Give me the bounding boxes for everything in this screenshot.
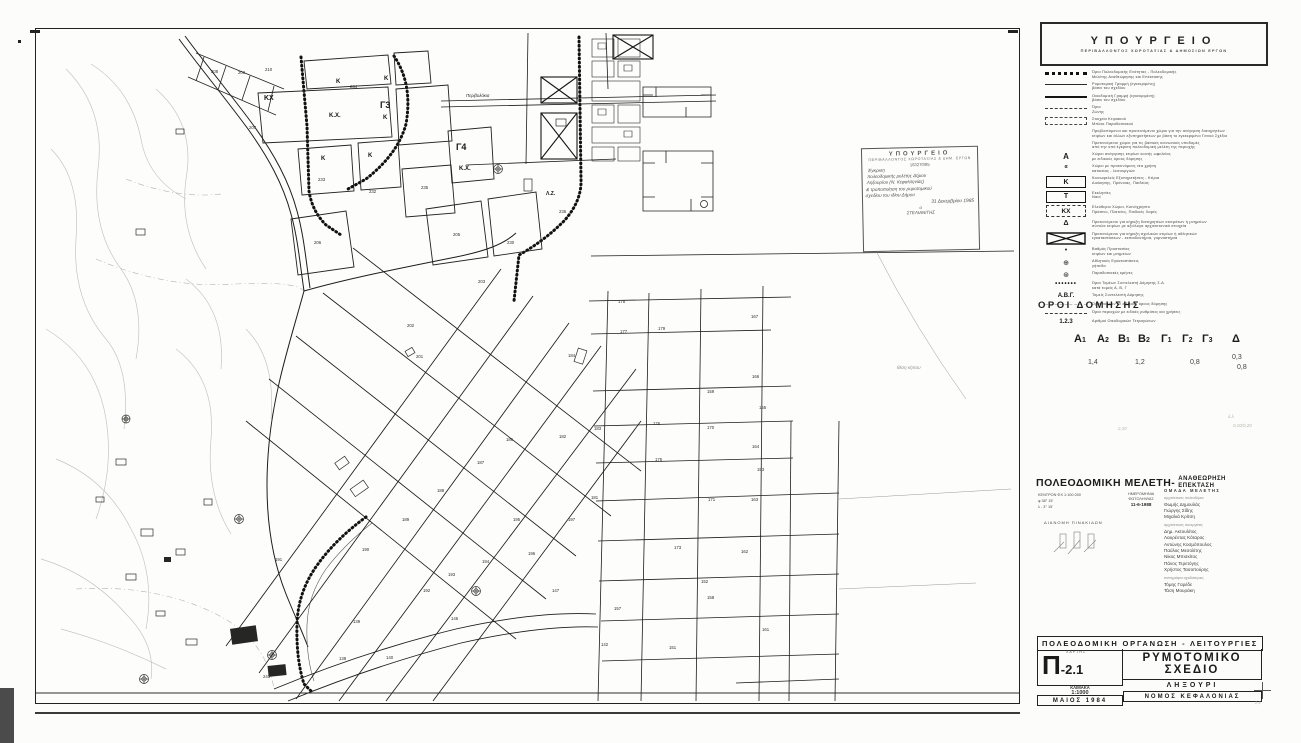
zone-label: Λ.Ζ. [546, 191, 556, 197]
zone-label: Κ [336, 79, 341, 85]
terms-column-header: Γ1 [1161, 333, 1172, 345]
team-title: ΟΜΑΔΑ ΜΕΛΕΤΗΣ [1164, 488, 1294, 493]
terms-column-header: Β1 [1118, 333, 1130, 345]
zone-label: Κ [368, 153, 373, 159]
block-number: 138 [339, 656, 347, 661]
legend-item: ⊕Αθλητικές Εγκαταστάσειςγήπεδα [1040, 259, 1296, 268]
plates-diagram [1050, 528, 1110, 558]
block-number: 233 [318, 177, 326, 182]
terms-value: 0,8 [1237, 364, 1247, 371]
terms-value: 1,2 [1135, 359, 1145, 366]
legend-symbol-none-icon [1040, 141, 1092, 147]
block-number: 208 [211, 69, 219, 74]
legend-symbol-none-icon [1040, 129, 1092, 135]
map-title-line2: ΣΧΕΔΙΟ [1165, 664, 1220, 676]
study-title-left: ΠΟΛΕΟΔΟΜΙΚΗ ΜΕΛΕΤΗ- [1036, 477, 1175, 489]
legend-label: Οικοδομική Γραμμή (εγκεκριμένη)βάσει του… [1092, 94, 1155, 103]
zone-label: 234 [350, 84, 358, 89]
legend-item: Α.Β.Γ.Τομείς Συντελεστή Δόμησης [1040, 293, 1296, 299]
legend-label: Στοιχεία ΚτιριακούΜπλοκ Παραδοσιακού [1092, 117, 1133, 126]
team-member-name: Χρήστος Τασοπούρης [1164, 567, 1294, 573]
block-number: 151 [669, 645, 677, 650]
block-number: 196 [528, 551, 536, 556]
main-road [179, 36, 516, 647]
terms-column-header: Α2 [1097, 333, 1109, 345]
block-number: 182 [559, 434, 567, 439]
block-number: 170 [707, 425, 715, 430]
legend-symbol-circast-icon: ⊛ [1040, 271, 1092, 279]
legend-symbol-xbox-icon [1040, 232, 1092, 245]
terms-value: 1,4 [1088, 359, 1098, 366]
block-number: 155 [759, 405, 767, 410]
legend-label: Ελεύθεροι Χώροι, ΚοινόχρηστοΠράσινο, Πλα… [1092, 205, 1157, 214]
street-grid-central [226, 248, 641, 701]
legend-symbol-A-icon: Α [1040, 152, 1092, 161]
photo-date-block: ΗΜΕΡΟΜΗΝΙΑ ΦΩΤΟΛΗΨΙΑΣ 11-6-1988 [1128, 492, 1154, 507]
block-number: 173 [674, 545, 682, 550]
block-number: 181 [591, 495, 599, 500]
team-groups: αρχιτέκτονες πολεοδόμοιΘωμής ΔημουλάςΓιώ… [1164, 496, 1294, 594]
block-number: 235 [421, 185, 429, 190]
legend-item: Προτεινόμενοι για κήρυξη σχολικών κτιρίω… [1040, 232, 1296, 245]
block-number: 163 [751, 497, 759, 502]
legend-symbol-line-icon [1040, 82, 1092, 88]
block-number: 197 [568, 517, 576, 522]
scattered-buildings [96, 119, 587, 645]
street-plan-drawing: 2082092102072332322352362062052302032022… [36, 29, 1019, 703]
legend-label: Προτεινόμενοι χώροι για τις βασικές κοιν… [1092, 141, 1200, 150]
legend-symbol-dashbox-icon [1040, 117, 1092, 125]
block-number: 152 [701, 579, 709, 584]
pencil-note: 2,20 [1118, 426, 1127, 431]
legend-item: Προβλεπόμενοι και προτεινόμενοι χώροι γι… [1040, 129, 1296, 138]
legend-item: Προτεινόμενοι χώροι για τις βασικές κοιν… [1040, 141, 1296, 150]
pencil-note: 0,20/0,20 [1233, 423, 1252, 428]
block-number: 189 [402, 517, 410, 522]
block-number: 142 [601, 642, 609, 647]
legend-item: ΚΚοινωφελείς Εξυπηρετήσεις - ΚτίριαΔιοίκ… [1040, 176, 1296, 188]
terms-column-header: Δ [1232, 333, 1240, 345]
stamp-hand-line: σχεδίου του ιδίου Δήμου [865, 191, 972, 199]
block-number: 192 [423, 588, 431, 593]
block-number: 175 [655, 457, 663, 462]
block-number: 140 [386, 655, 394, 660]
block-number: 153 [757, 467, 765, 472]
map-legend: Όριο Πολεοδομικής Ενότητας - Πολεοδομική… [1040, 70, 1296, 328]
legend-symbol-tbox-icon: Τ [1040, 191, 1092, 203]
legend-label: ΕκκλησίεςΝαοί [1092, 191, 1111, 200]
team-member-name: Τάση Μουράκη [1164, 588, 1294, 594]
zone-label: ΚΧ [264, 95, 274, 102]
block-number: 157 [614, 606, 622, 611]
scan-corner-artifact [0, 688, 14, 743]
block-number: 209 [238, 70, 246, 75]
team-member-name: Μιχαλιά Κρίτση [1164, 514, 1294, 520]
block-number: 195 [513, 517, 521, 522]
dark-buildings [164, 557, 287, 677]
sheet-bottom-rule [35, 712, 1020, 714]
legend-symbol-abc-icon: Α.Β.Γ. [1040, 293, 1092, 299]
block-number: 188 [437, 488, 445, 493]
study-meta: ΚΕΝΤΡΟΝ ΦΧ 1:100.000φ 38° 15'λ - 3° 15' [1038, 492, 1081, 510]
block-number: 190 [362, 547, 370, 552]
map-frame: 2082092102072332322352362062052302032022… [35, 28, 1020, 704]
date-cell: ΜΑΙΟΣ 1984 [1037, 695, 1123, 706]
legend-symbol-thick-icon [1040, 94, 1092, 100]
block-number: 179 [658, 326, 666, 331]
zone-label: Γ3 [380, 100, 390, 110]
map-code-number: -2.1 [1061, 662, 1083, 677]
block-number: 184 [568, 353, 576, 358]
terms-column-header: Β2 [1138, 333, 1150, 345]
block-number: 164 [752, 444, 760, 449]
legend-label: Όρια Τομέων Συντελεστή Δόμησης Σ.Δ.κατά … [1092, 281, 1165, 290]
legend-label: Όριο Πολεοδομικής Ενότητας - Πολεοδομική… [1092, 70, 1176, 79]
titleblock-code-cell: ΧΑΡΤΗΣ Π-2.1 [1037, 649, 1123, 686]
zone-label: Γ4 [456, 142, 466, 152]
legend-symbol-dotrow-icon: ••••••• [1040, 281, 1092, 287]
contour-lines [41, 64, 272, 679]
study-title-right-1: ΑΝΑΘΕΩΡΗΣΗ [1178, 476, 1226, 482]
terms-column-header: Α1 [1074, 333, 1086, 345]
block-number: 158 [707, 595, 715, 600]
block-number: 207 [249, 125, 257, 130]
legend-item: ΚΧΕλεύθεροι Χώροι, ΚοινόχρηστοΠράσινο, Π… [1040, 205, 1296, 217]
pencil-note: λ.λ. [1228, 414, 1235, 419]
legend-symbol-bdots-icon [1040, 70, 1092, 76]
scale-cell: ΚΛΙΜΑΚΑ 1:1000 [1037, 686, 1123, 695]
legend-symbol-a-icon: α [1040, 164, 1092, 170]
legend-symbol-kbox-icon: Κ [1040, 176, 1092, 188]
street-grid-right [589, 251, 1014, 701]
block-number: 206 [314, 240, 322, 245]
street-name-label: Περιβολάκια [466, 93, 490, 98]
legend-item: ΑΧώροι ανέγερσης κτιρίων κοινής ωφελείας… [1040, 152, 1296, 161]
block-number: 183 [594, 426, 602, 431]
map-title-line1: ΡΥΜΟΤΟΜΙΚΟ [1142, 652, 1241, 664]
legend-item: Όριο Πολεοδομικής Ενότητας - Πολεοδομική… [1040, 70, 1296, 79]
block-number: 210 [265, 67, 273, 72]
terms-value: 0,3 [1232, 354, 1242, 361]
block-number: 186 [506, 437, 514, 442]
block-number: 162 [741, 549, 749, 554]
map-title-cell: ΡΥΜΟΤΟΜΙΚΟ ΣΧΕΔΙΟ [1123, 649, 1262, 680]
block-number: 147 [552, 588, 560, 593]
block-number: 243 [263, 674, 271, 679]
stamp-signature: ΣΤΕΛΙΑΝΙΤΗΣ [867, 209, 974, 216]
legend-item: αΧώροι με προτεινόμενη νέα χρήσηκατοικία… [1040, 164, 1296, 173]
legend-label: Προτεινόμενοι για κήρυξη σχολικών κτιρίω… [1092, 232, 1197, 241]
legend-label: Χώροι με προτεινόμενη νέα χρήσηκατοικίας… [1092, 164, 1156, 173]
legend-symbol-dash-icon [1040, 105, 1092, 111]
block-number: 187 [477, 460, 485, 465]
building-terms-table: Α1Α2Β1Β2Γ1Γ2Γ3Δ1,41,20,80,30,82,200,20/0… [1038, 311, 1298, 441]
map-code: Π-2.1 [1042, 652, 1083, 679]
legend-label: Προβλεπόμενοι και προτεινόμενοι χώροι γι… [1092, 129, 1227, 138]
ministry-subtitle: ΠΕΡΙΒΑΛΛΟΝΤΟΣ ΧΩΡΟΤΑΞΙΑΣ & ΔΗΜΟΣΙΩΝ ΕΡΓΩ… [1042, 49, 1266, 53]
study-meta-line: λ - 3° 15' [1038, 504, 1081, 510]
corner-tick [18, 40, 21, 43]
block-number: 159 [707, 389, 715, 394]
block-number: 166 [752, 374, 760, 379]
legend-item: ΤΕκκλησίεςΝαοί [1040, 191, 1296, 203]
block-number: 177 [620, 329, 628, 334]
block-number: 194 [482, 559, 490, 564]
study-team: ΟΜΑΔΑ ΜΕΛΕΤΗΣ αρχιτέκτονες πολεοδόμοιΘωμ… [1164, 488, 1294, 594]
legend-label: Χώροι ανέγερσης κτιρίων κοινής ωφελείαςμ… [1092, 152, 1171, 161]
zone-label: Κ.Χ. [329, 113, 341, 119]
prefecture-cell: ΝΟΜΟΣ ΚΕΦΑΛΟΝΙΑΣ [1123, 691, 1262, 702]
block-number: 202 [407, 323, 415, 328]
block-number: 232 [369, 189, 377, 194]
zone-label: Κ.Χ. [459, 166, 471, 172]
legend-label: Τομείς Συντελεστή Δόμησης [1092, 293, 1144, 298]
legend-label: Ρυμοτομική Γραμμή (εγκεκριμένη)βάσει του… [1092, 82, 1155, 91]
ministry-title: ΥΠΟΥΡΓΕΙΟ [1042, 35, 1266, 47]
block-number: 203 [478, 279, 486, 284]
study-block: ΠΟΛΕΟΔΟΜΙΚΗ ΜΕΛΕΤΗ- ΑΝΑΘΕΩΡΗΣΗ ΕΠΕΚΤΑΣΗ … [1036, 476, 1298, 489]
top-blocks [188, 53, 284, 115]
legend-item: ΔΠροτεινόμενοι για κήρυξη διατηρητέων κτ… [1040, 220, 1296, 229]
corner-tick [30, 30, 40, 33]
tree-symbols [122, 165, 503, 684]
block-number: 171 [708, 497, 716, 502]
school-buildings [643, 87, 713, 211]
map-code-letter: Π [1042, 650, 1061, 680]
block-number: 176 [653, 421, 661, 426]
approval-stamp: ΥΠΟΥΡΓΕΙΟ ΠΕΡΙΒΑΛΛΟΝΤΟΣ ΧΩΡΟΤΑΞΙΑΣ & ΔΗΜ… [861, 146, 980, 252]
legend-symbol-kxbox-icon: ΚΧ [1040, 205, 1092, 217]
legend-label: Παραδοσιακές κρήνες [1092, 271, 1133, 276]
faint-right-lines [839, 251, 1011, 589]
registration-cross [1254, 682, 1271, 699]
legend-label: Αθλητικές Εγκαταστάσειςγήπεδα [1092, 259, 1139, 268]
legend-item: Στοιχεία ΚτιριακούΜπλοκ Παραδοσιακού [1040, 117, 1296, 126]
legend-item: ⊛Παραδοσιακές κρήνες [1040, 271, 1296, 279]
plates-title: ΔΙΑΝΟΜΗ ΠΙΝΑΚΙΔΩΝ [1044, 520, 1103, 525]
corner-tick [1008, 30, 1018, 33]
zone-label: Κ [384, 76, 389, 82]
legend-item: •••••••Όρια Τομέων Συντελεστή Δόμησης Σ.… [1040, 281, 1296, 290]
legend-label: ΌριοΖώνης [1092, 105, 1104, 114]
block-number: 178 [618, 299, 626, 304]
team-group-header: αρχιτέκτονες συνεργάτες [1164, 523, 1294, 527]
scanned-map-sheet: { "map": { "street_label": "Περιβολάκια"… [0, 0, 1301, 743]
block-number: 201 [416, 354, 424, 359]
zone-label: Κ [383, 115, 388, 121]
block-number: 161 [762, 627, 770, 632]
ministry-title-box: ΥΠΟΥΡΓΕΙΟ ΠΕΡΙΒΑΛΛΟΝΤΟΣ ΧΩΡΟΤΑΞΙΑΣ & ΔΗΜ… [1040, 22, 1268, 66]
terms-value: 0,8 [1190, 359, 1200, 366]
legend-item: ΌριοΖώνης [1040, 105, 1296, 114]
block-number: 236 [559, 209, 567, 214]
kx-parcels [258, 51, 542, 275]
legend-symbol-tri-icon: Δ [1040, 220, 1092, 227]
zone-label: Κ [321, 156, 326, 162]
building-terms-title: ΟΡΟΙ ΔΟΜΗΣΗΣ [1038, 300, 1298, 311]
legend-label: Βαθμός Προστασίαςκτιρίων και μνημείων [1092, 247, 1131, 256]
team-group-header: αρχιτέκτονες πολεοδόμοι [1164, 496, 1294, 500]
legend-item: Ρυμοτομική Γραμμή (εγκεκριμένη)βάσει του… [1040, 82, 1296, 91]
block-number: 167 [751, 314, 759, 319]
terms-column-header: Γ3 [1202, 333, 1213, 345]
block-number: 191 [275, 557, 283, 562]
stamp-note: θέση κήπου [897, 365, 921, 370]
photo-date: 11-6-1988 [1128, 502, 1154, 507]
block-number: 230 [507, 240, 515, 245]
block-number: 193 [448, 572, 456, 577]
block-number: 139 [353, 619, 361, 624]
legend-label: Προτεινόμενοι για κήρυξη διατηρητέων κτι… [1092, 220, 1207, 229]
block-number: 146 [451, 616, 459, 621]
legend-item: Οικοδομική Γραμμή (εγκεκριμένη)βάσει του… [1040, 94, 1296, 103]
block-number: 205 [453, 232, 461, 237]
terms-column-header: Γ2 [1182, 333, 1193, 345]
building-terms-section: ΟΡΟΙ ΔΟΜΗΣΗΣ Α1Α2Β1Β2Γ1Γ2Γ3Δ1,41,20,80,3… [1038, 300, 1298, 441]
legend-label: Κοινωφελείς Εξυπηρετήσεις - ΚτίριαΔιοίκη… [1092, 176, 1159, 185]
block-number-labels: 2082092102072332322352362062052302032022… [211, 67, 770, 679]
stamp-handwriting: Έγκρισηπολεοδομικής μελέτης ΔήμουΛηξουρί… [865, 166, 975, 199]
legend-symbol-circplus-icon: ⊕ [1040, 259, 1092, 267]
legend-symbol-dot-icon: • [1040, 247, 1092, 254]
pencil-scribble: 2,5 [1255, 700, 1261, 705]
team-group-header: τοπογράφοι σχεδιάστριες [1164, 576, 1294, 580]
legend-item: •Βαθμός Προστασίαςκτιρίων και μνημείων [1040, 247, 1296, 256]
